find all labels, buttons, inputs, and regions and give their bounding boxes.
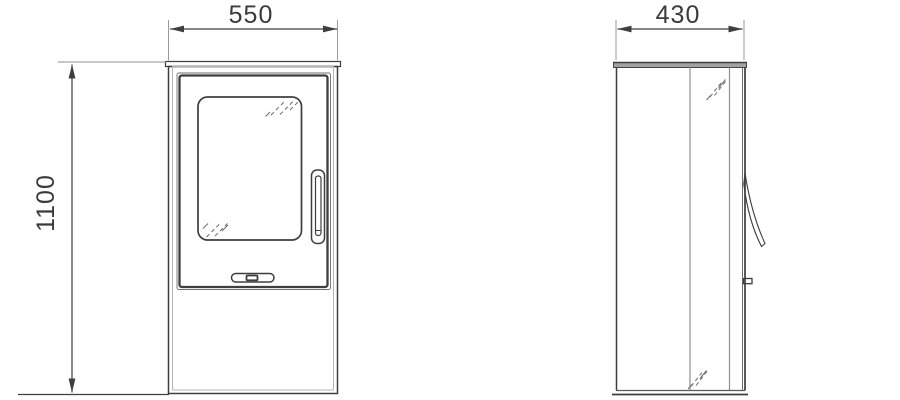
arrow-right-icon bbox=[729, 26, 743, 33]
glass-reflection-bottom-icon bbox=[203, 224, 228, 238]
side-reflection-bottom-icon bbox=[688, 371, 707, 390]
door-frame-outer-line bbox=[177, 73, 331, 290]
front-view bbox=[18, 62, 341, 395]
arrow-left-icon bbox=[170, 26, 184, 33]
door-handle-front bbox=[312, 170, 325, 244]
dim-label-width: 550 bbox=[229, 1, 274, 29]
stove-body-inner-line bbox=[173, 67, 334, 391]
arrow-left-icon bbox=[618, 26, 632, 33]
air-control-lever bbox=[232, 274, 275, 283]
side-reflection-top-icon bbox=[707, 80, 726, 101]
arrow-right-icon bbox=[323, 26, 337, 33]
dimension-front-width: 550 bbox=[169, 1, 338, 61]
door-glass bbox=[198, 97, 302, 240]
door-handle-side-profile bbox=[744, 173, 765, 247]
side-view bbox=[612, 63, 765, 395]
arrow-down-icon bbox=[69, 379, 76, 393]
dimension-front-height: 1100 bbox=[32, 62, 166, 393]
stove-dimension-drawing: 550 1100 bbox=[0, 0, 900, 400]
top-plate-side bbox=[614, 63, 747, 68]
drawing-svg: 550 1100 bbox=[0, 0, 900, 400]
arrow-up-icon bbox=[69, 65, 76, 79]
dim-label-height: 1100 bbox=[32, 174, 60, 232]
dimension-side-depth: 430 bbox=[616, 1, 744, 60]
dim-label-depth: 430 bbox=[656, 1, 701, 29]
door-frame bbox=[180, 76, 328, 288]
glass-reflection-top-icon bbox=[266, 100, 301, 117]
